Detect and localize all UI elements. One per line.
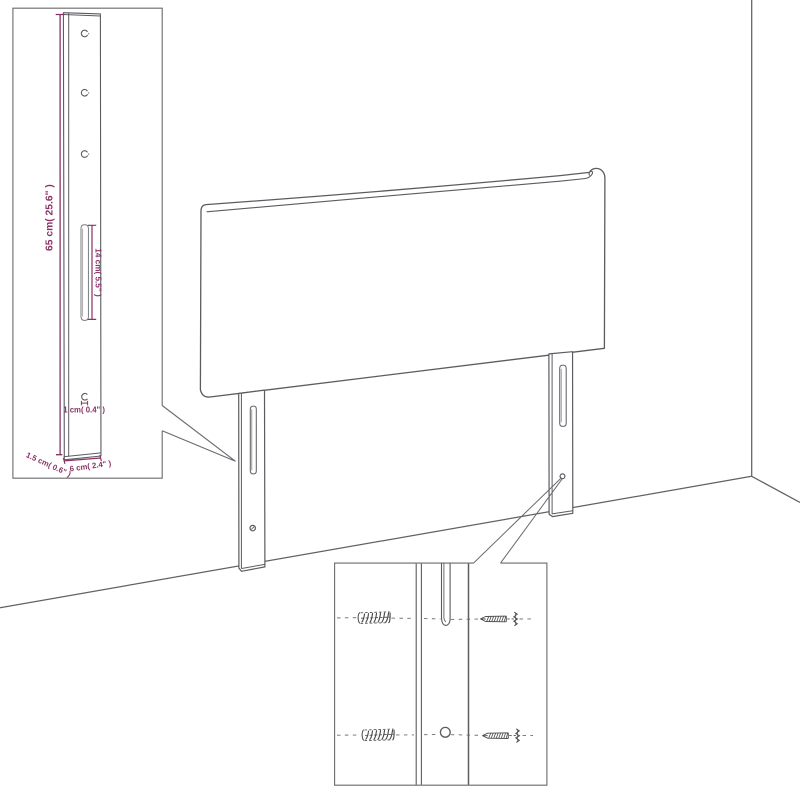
svg-text:65 cm( 25.6" ): 65 cm( 25.6" ) (44, 184, 55, 251)
svg-text:14 cm( 5.5" ): 14 cm( 5.5" ) (93, 248, 102, 297)
svg-text:1 cm( 0.4" ): 1 cm( 0.4" ) (63, 406, 105, 415)
